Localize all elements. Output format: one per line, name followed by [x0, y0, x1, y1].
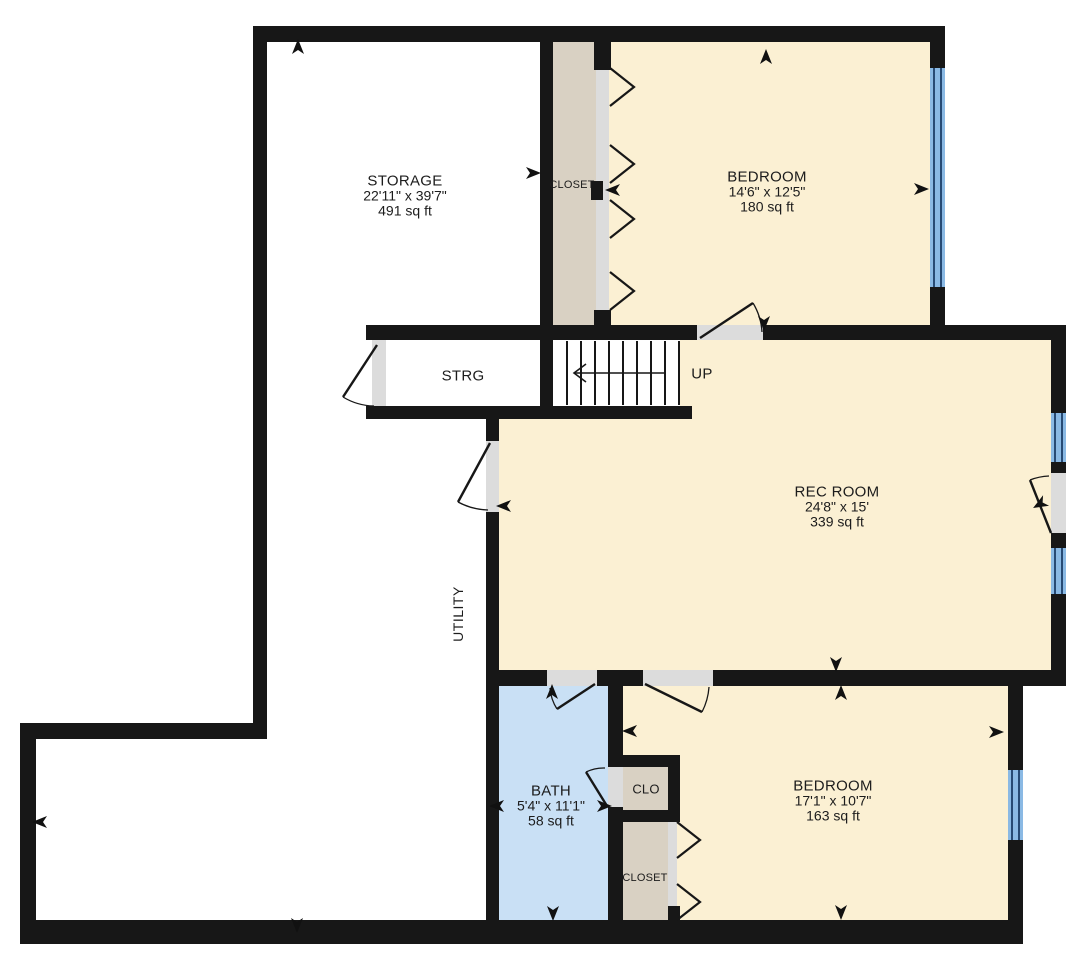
- label-upper-closet: CLOSET: [549, 179, 594, 191]
- wall-upper-closet-stub-top: [594, 42, 611, 70]
- wall-band-right: [763, 325, 1066, 340]
- wall-rec-bottom-b: [597, 670, 643, 686]
- strg-door-opening: [372, 340, 386, 406]
- upper-bedroom-dims: 14'6" x 12'5": [727, 185, 807, 200]
- upper-bedroom-area: 180 sq ft: [727, 200, 807, 215]
- wall-top: [253, 26, 945, 42]
- label-bath: BATH 5'4" x 11'1" 58 sq ft: [517, 784, 585, 829]
- stairs-up-label: UP: [691, 367, 712, 382]
- wall-band-left: [366, 325, 697, 340]
- wall-utility-east-a: [486, 419, 499, 441]
- bath-dims: 5'4" x 11'1": [517, 799, 585, 814]
- storage-area: 491 sq ft: [363, 204, 447, 219]
- window-rec-north: [1051, 413, 1066, 462]
- stair-treads: [567, 341, 679, 405]
- wall-rec-right-a: [1051, 340, 1066, 413]
- lower-closet-opening: [668, 822, 677, 906]
- wall-upper-closet-stub-bottom: [594, 310, 611, 328]
- wall-strg-stairs-bottom: [366, 406, 692, 419]
- wall-rec-right-b: [1051, 462, 1066, 473]
- wall-storage-closet: [540, 42, 553, 419]
- wall-utility-east-b: [486, 512, 499, 920]
- label-lower-closet: CLOSET: [622, 872, 667, 884]
- strg-name: STRG: [442, 369, 485, 384]
- wall-west-upper: [253, 26, 267, 739]
- label-up: UP: [691, 367, 712, 382]
- wall-clo-bottom: [608, 810, 680, 822]
- label-strg: STRG: [442, 369, 485, 384]
- wall-bottom: [20, 920, 1023, 944]
- lower-bedroom-door-opening: [643, 670, 713, 686]
- storage-dims: 22'11" x 39'7": [363, 189, 447, 204]
- label-rec-room: REC ROOM 24'8" x 15' 339 sq ft: [795, 485, 880, 530]
- bath-area: 58 sq ft: [517, 814, 585, 829]
- wall-upper-bedroom-right-a: [930, 42, 945, 68]
- lower-bedroom-name: BEDROOM: [793, 779, 873, 794]
- room-lower-closet: [623, 822, 668, 920]
- label-lower-bedroom: BEDROOM 17'1" x 10'7" 163 sq ft: [793, 779, 873, 824]
- window-rec-south: [1051, 548, 1066, 594]
- label-storage: STORAGE 22'11" x 39'7" 491 sq ft: [363, 174, 447, 219]
- wall-lower-bedroom-right-b: [1008, 840, 1023, 944]
- stair-direction-arrow: [574, 364, 664, 382]
- lower-bedroom-area: 163 sq ft: [793, 809, 873, 824]
- label-clo: CLO: [632, 782, 659, 797]
- floor-plan: STORAGE 22'11" x 39'7" 491 sq ft CLOSET …: [0, 0, 1088, 960]
- wall-upper-bedroom-right-b: [930, 287, 945, 340]
- wall-step: [20, 723, 267, 739]
- upper-bedroom-name: BEDROOM: [727, 170, 807, 185]
- wall-lower-closet-stub: [668, 906, 680, 920]
- room-rec-upper: [680, 340, 1051, 424]
- clo-door-opening: [608, 767, 623, 807]
- lower-bedroom-dims: 17'1" x 10'7": [793, 794, 873, 809]
- bath-name: BATH: [517, 784, 585, 799]
- rec-right-door-opening: [1051, 473, 1066, 533]
- wall-bath-east-b: [608, 807, 623, 920]
- upper-bedroom-door-opening: [697, 325, 763, 340]
- rec-left-door-opening: [486, 441, 499, 512]
- storage-name: STORAGE: [363, 174, 447, 189]
- wall-west-lower: [20, 723, 36, 944]
- window-upper-bedroom: [930, 68, 945, 287]
- rec-room-dims: 24'8" x 15': [795, 500, 880, 515]
- rec-room-name: REC ROOM: [795, 485, 880, 500]
- wall-lower-bedroom-right-a: [1008, 670, 1023, 770]
- label-upper-bedroom: BEDROOM 14'6" x 12'5" 180 sq ft: [727, 170, 807, 215]
- room-rec-main: [499, 419, 1051, 670]
- label-utility: UTILITY: [450, 586, 466, 642]
- bath-door-opening: [547, 670, 597, 686]
- rec-room-area: 339 sq ft: [795, 515, 880, 530]
- window-lower-bedroom: [1008, 770, 1023, 840]
- wall-rec-right-c: [1051, 533, 1066, 548]
